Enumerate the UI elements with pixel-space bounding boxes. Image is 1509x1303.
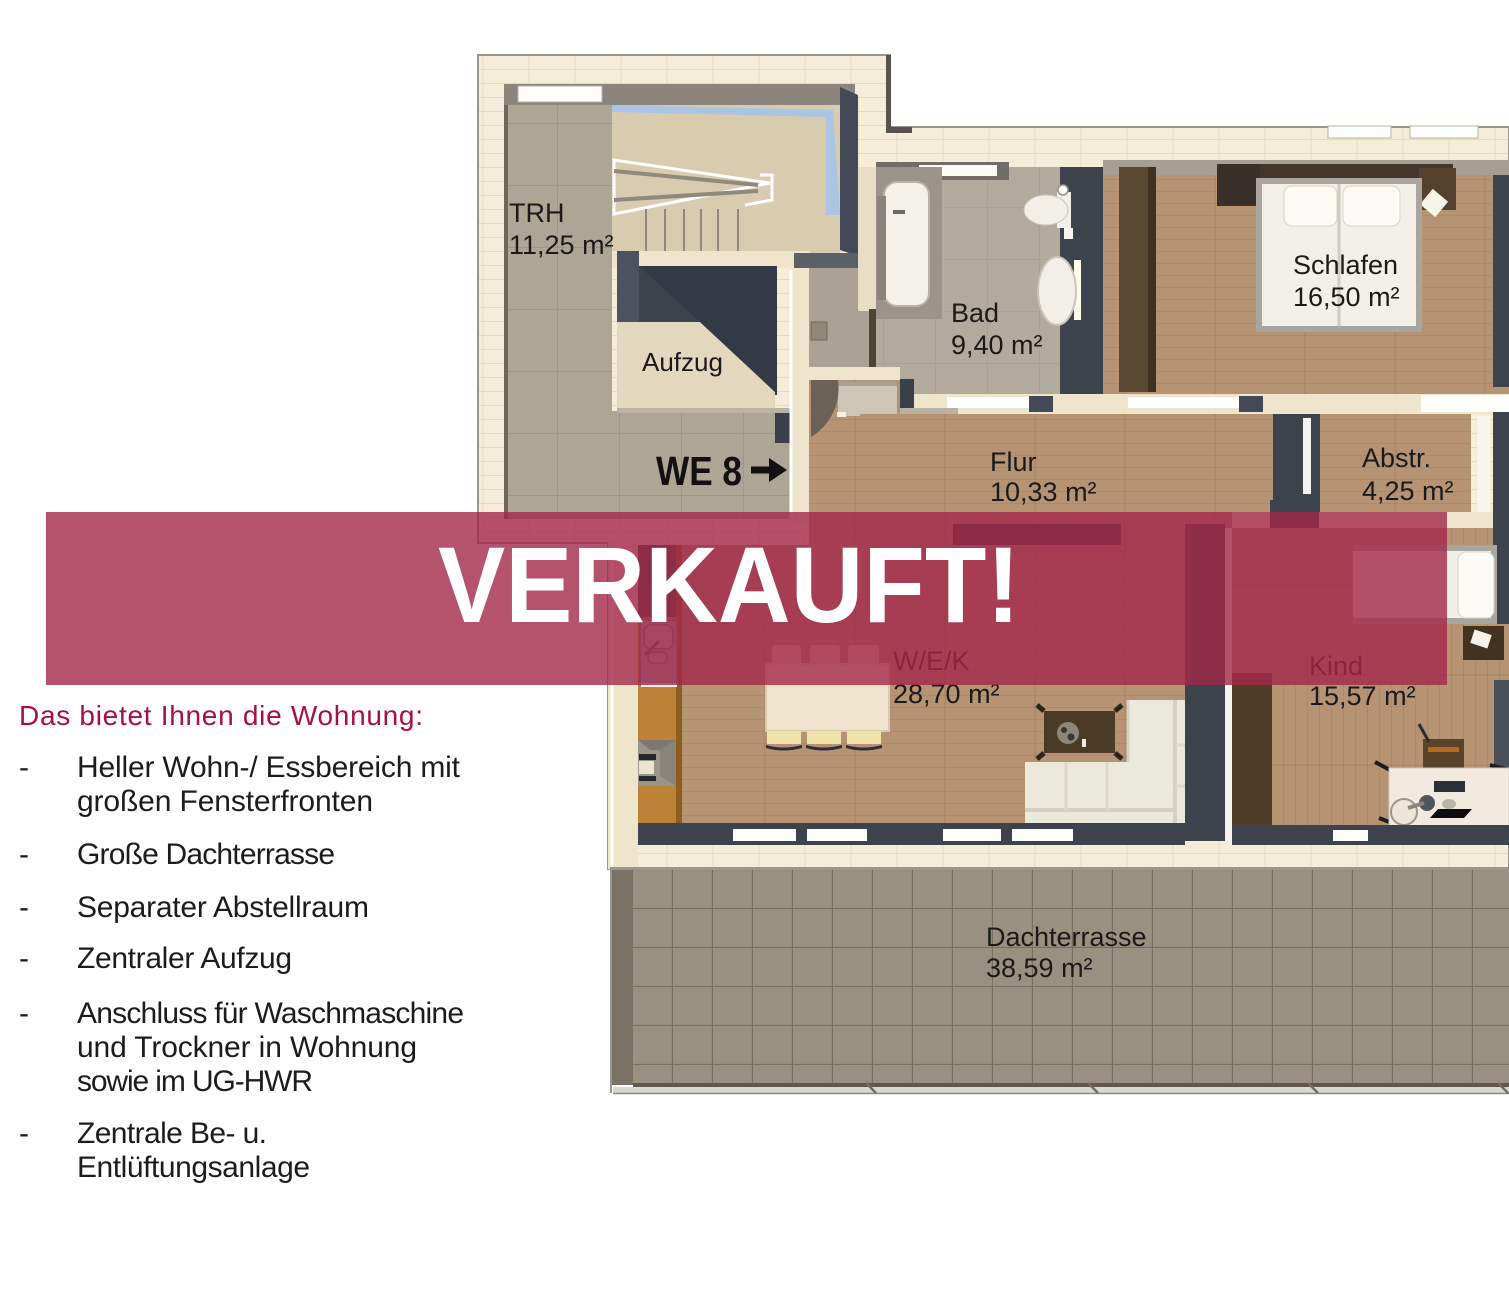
svg-text:Abstr.: Abstr. xyxy=(1362,443,1431,473)
svg-text:Dachterrasse: Dachterrasse xyxy=(986,922,1147,952)
svg-text:10,33 m²: 10,33 m² xyxy=(990,477,1097,507)
svg-text:-: - xyxy=(19,942,29,975)
svg-text:11,25 m²: 11,25 m² xyxy=(509,230,614,260)
svg-text:WE 8: WE 8 xyxy=(656,448,742,494)
svg-text:großen Fensterfronten: großen Fensterfronten xyxy=(77,785,373,818)
svg-text:Das bietet Ihnen die Wohnung:: Das bietet Ihnen die Wohnung: xyxy=(19,700,423,731)
svg-text:TRH: TRH xyxy=(509,198,565,228)
svg-text:Heller Wohn-/ Essbereich mit: Heller Wohn-/ Essbereich mit xyxy=(77,751,461,784)
svg-text:-: - xyxy=(19,751,29,784)
svg-text:15,57 m²: 15,57 m² xyxy=(1309,681,1416,711)
svg-text:und Trockner in Wohnung: und Trockner in Wohnung xyxy=(77,1031,417,1064)
svg-text:Zentrale Be- u.: Zentrale Be- u. xyxy=(77,1117,267,1150)
svg-text:-: - xyxy=(19,891,29,924)
svg-text:38,59 m²: 38,59 m² xyxy=(986,953,1093,983)
svg-text:Bad: Bad xyxy=(951,298,999,328)
svg-text:-: - xyxy=(19,1117,29,1150)
svg-text:Große Dachterrasse: Große Dachterrasse xyxy=(77,838,335,871)
svg-text:Zentraler Aufzug: Zentraler Aufzug xyxy=(77,942,292,975)
svg-text:Entlüftungsanlage: Entlüftungsanlage xyxy=(77,1151,310,1184)
svg-text:16,50 m²: 16,50 m² xyxy=(1293,282,1400,312)
svg-text:4,25 m²: 4,25 m² xyxy=(1362,476,1454,506)
svg-text:Aufzug: Aufzug xyxy=(642,347,723,377)
svg-text:-: - xyxy=(19,838,29,871)
svg-text:Separater Abstellraum: Separater Abstellraum xyxy=(77,891,369,924)
svg-text:Anschluss für Waschmaschine: Anschluss für Waschmaschine xyxy=(77,997,464,1030)
svg-text:VERKAUFT!: VERKAUFT! xyxy=(438,524,1020,645)
svg-text:-: - xyxy=(19,997,29,1030)
svg-text:sowie im UG-HWR: sowie im UG-HWR xyxy=(77,1065,313,1098)
svg-text:Schlafen: Schlafen xyxy=(1293,250,1398,280)
svg-text:9,40 m²: 9,40 m² xyxy=(951,330,1043,360)
svg-text:Flur: Flur xyxy=(990,447,1037,477)
